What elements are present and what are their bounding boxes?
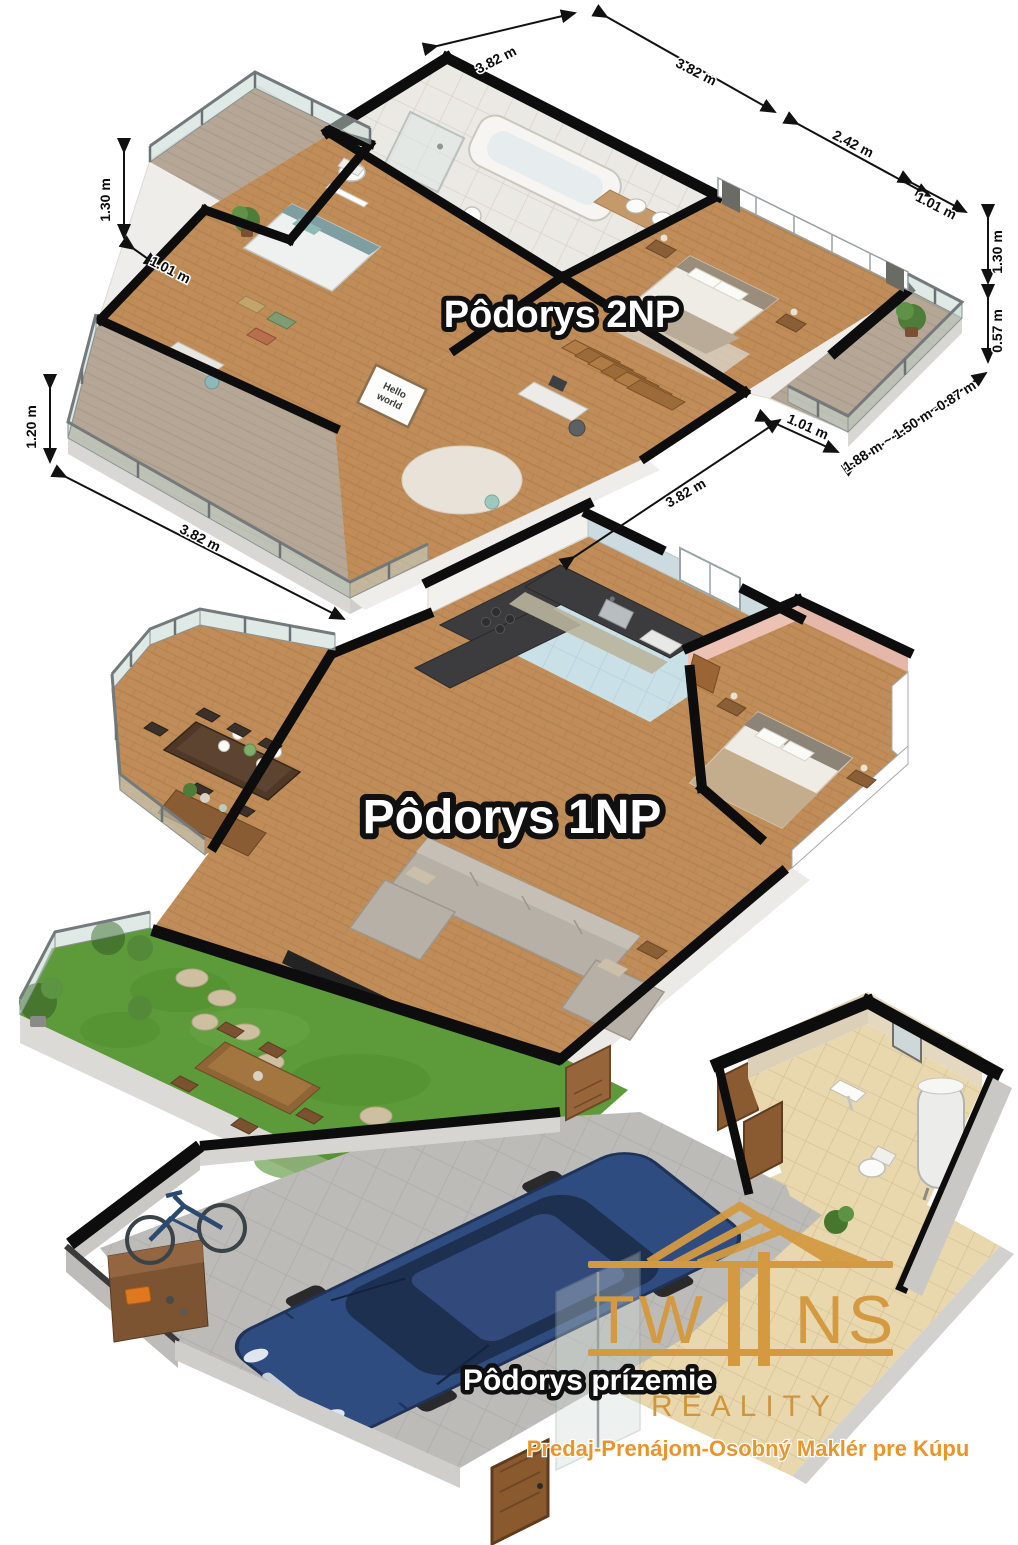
title-2np: Pôdorys 2NP [444, 294, 681, 336]
dim-left-v1: 1.30 m [97, 178, 113, 222]
floorplan-rendering: Hello world [0, 0, 1018, 1545]
round-rug [402, 446, 522, 514]
logo-i-bar-right [758, 1252, 770, 1366]
dim-top-right: 3.82 m [673, 55, 719, 89]
logo-subtitle: REALITY [651, 1390, 839, 1423]
dim-right-v2: 0.57 m [989, 309, 1005, 353]
logo-i-bar-left [728, 1266, 740, 1366]
dim-left-v2: 1.20 m [23, 405, 39, 449]
dim-bottom-se: 3.82 m [663, 475, 709, 511]
title-1np: Pôdorys 1NP [363, 791, 662, 844]
dim-right-v1: 1.30 m [989, 230, 1005, 274]
kid-chair [485, 495, 499, 509]
logo-text-right: NS [795, 1282, 897, 1358]
dim-right-small: 1.01 m [913, 189, 959, 223]
floorplan-poster: Hello world [0, 0, 1018, 1545]
logo-tagline: Predaj-Prenájom-Osobný Maklér pre Kúpu [527, 1436, 970, 1461]
logo-text-left: TW [593, 1282, 707, 1358]
dim-top-left: 3.82 m [473, 43, 519, 77]
dim-right-upper: 2.42 m [830, 127, 876, 161]
workbench [108, 1240, 208, 1342]
